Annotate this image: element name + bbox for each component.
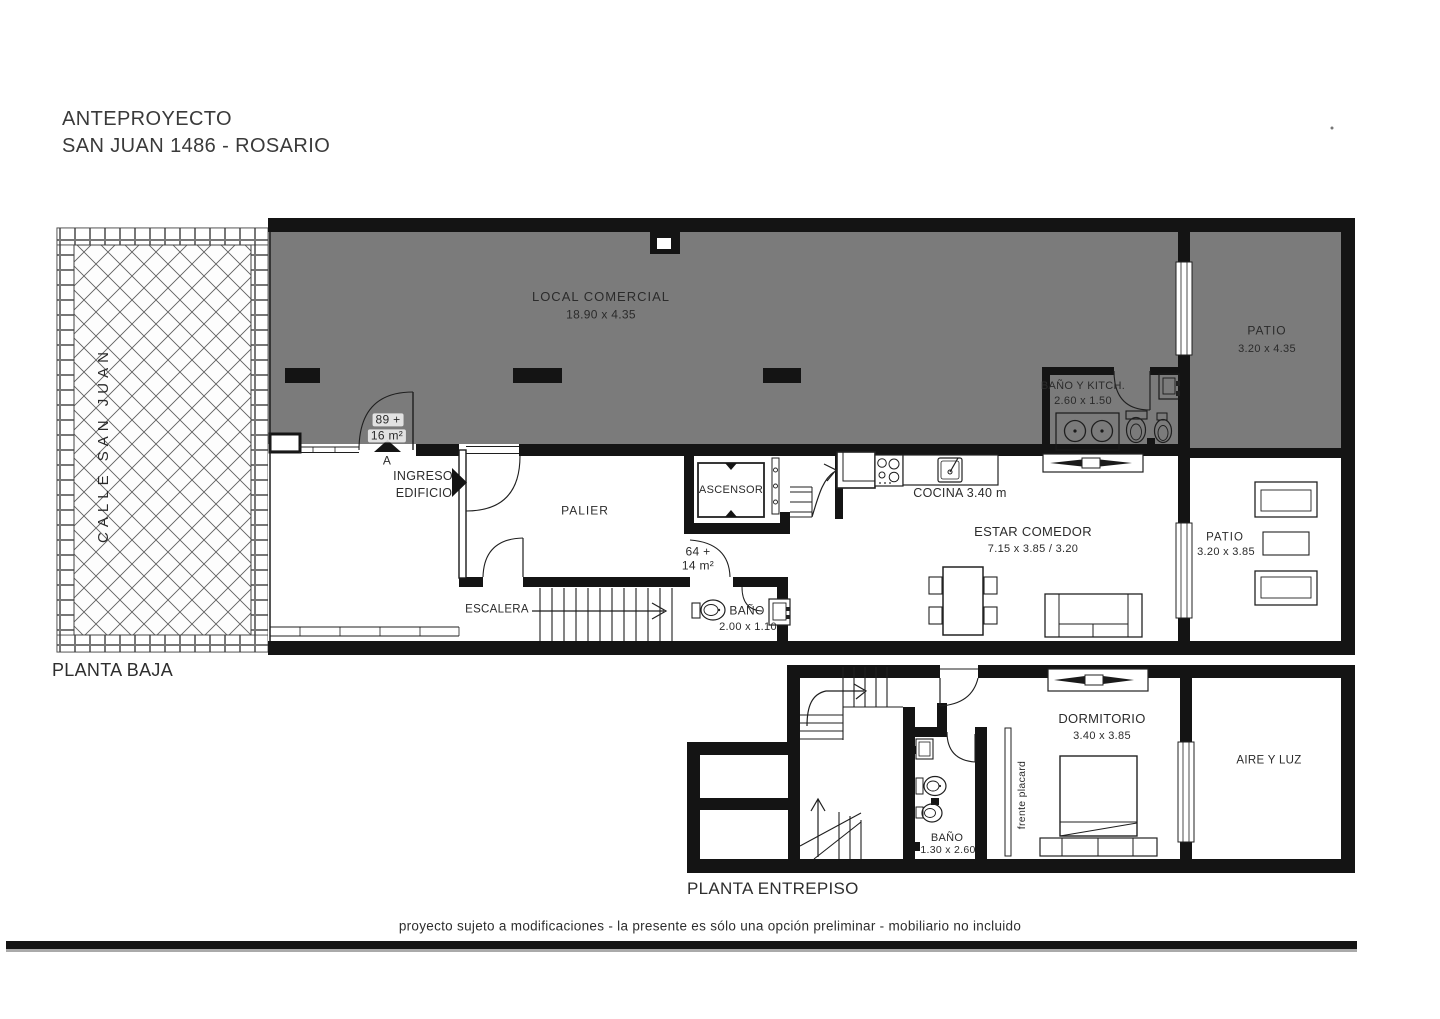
dining-table [943,567,983,635]
label-estar: ESTAR COMEDOR [974,525,1092,539]
street-sidewalk [57,228,268,652]
label-ascensor: ASCENSOR [699,484,763,496]
label-bano-ep: BAÑO [931,832,963,844]
label-local-comercial: LOCAL COMERCIAL [532,290,670,304]
label-area-depto-1: 64 + [686,545,711,558]
label-cocina: COCINA 3.40 m [913,487,1007,501]
label-area-depto-2: 14 m² [682,559,714,572]
label-frente-placard: frente placard [1017,761,1029,829]
label-area-local-2: 16 m² [368,429,406,442]
label-planta-entrepiso: PLANTA ENTREPISO [687,880,859,899]
label-patio-inf-dims: 3.20 x 3.85 [1197,546,1255,558]
label-patio-sup-dims: 3.20 x 4.35 [1238,343,1296,355]
plan-planta-baja [268,218,1355,655]
furniture-patio [1255,482,1317,605]
footer-rule [6,941,1357,952]
label-bano-pb: BAÑO [729,604,764,617]
label-ingreso-2: EDIFICIO [396,487,453,501]
room-local-comercial [268,232,1178,444]
label-palier: PALIER [561,504,609,517]
label-patio-sup: PATIO [1247,324,1286,337]
kitchen-cocina [875,455,998,486]
label-bano-pb-dims: 2.00 x 1.10 [719,621,777,633]
label-estar-dims: 7.15 x 3.85 / 3.20 [988,543,1078,555]
drawing-title: ANTEPROYECTO SAN JUAN 1486 - ROSARIO [62,106,330,160]
label-dormitorio-dims: 3.40 x 3.85 [1073,730,1131,742]
label-bano-kitch: BAÑO Y KITCH. [1041,380,1125,392]
footer-disclaimer: proyecto sujeto a modificaciones - la pr… [399,920,1021,935]
title-line1: ANTEPROYECTO [62,106,330,133]
label-door-a: A [383,454,391,467]
label-ingreso-1: INGRESO [393,470,453,484]
title-line2: SAN JUAN 1486 - ROSARIO [62,133,330,160]
label-patio-inf: PATIO [1206,532,1244,545]
label-planta-baja: PLANTA BAJA [52,661,173,681]
room-patio-superior [1190,232,1341,448]
label-bano-ep-dims: 1.30 x 2.60 [920,845,975,857]
floorplan-page: ANTEPROYECTO SAN JUAN 1486 - ROSARIO CAL… [0,0,1440,1019]
label-aire-y-luz: AIRE Y LUZ [1236,755,1301,768]
bed [1060,756,1137,836]
placard-front-line [1005,728,1011,856]
label-escalera: ESCALERA [465,604,529,617]
label-bano-kitch-dims: 2.60 x 1.50 [1054,395,1112,407]
label-dormitorio: DORMITORIO [1058,712,1145,726]
stray-dot [1331,127,1334,130]
label-local-comercial-dims: 18.90 x 4.35 [566,308,636,321]
label-area-local-1: 89 + [373,413,404,426]
street-label: CALLE SAN JUAN [96,347,113,543]
